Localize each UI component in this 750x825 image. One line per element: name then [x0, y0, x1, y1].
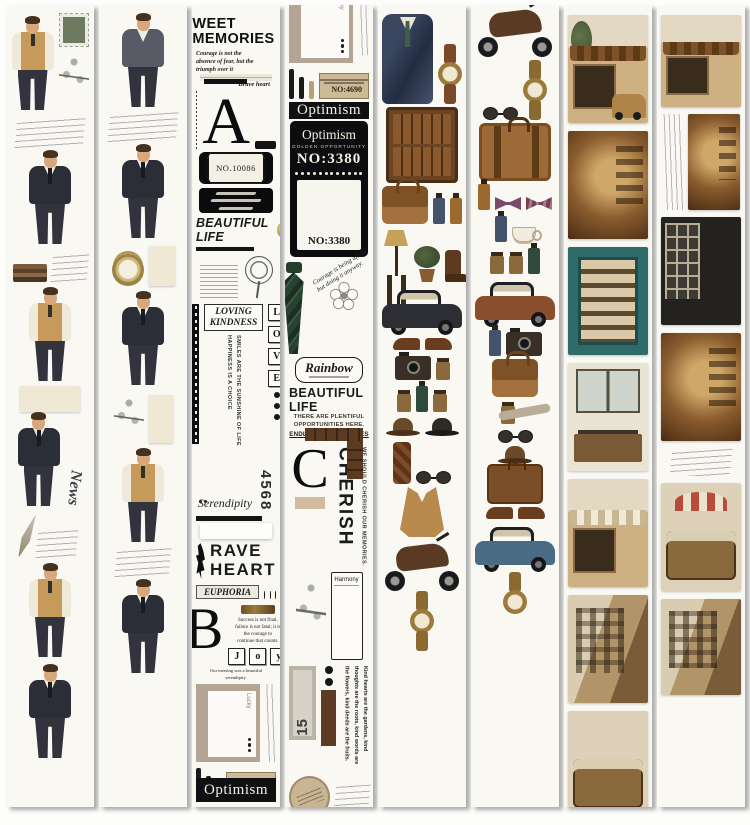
harmony-row: Harmony [289, 572, 369, 660]
dot [275, 591, 276, 599]
awning [570, 46, 645, 61]
shoes-row [382, 338, 462, 350]
man-vest-illustration-2 [29, 290, 71, 381]
dots-bar-column [321, 666, 336, 746]
sunglasses-row [475, 430, 555, 443]
vertical-mottos: HAPPINESS IS A CHOICE SMILES ARE THE SUN… [226, 335, 241, 453]
kindness-column: LOVING KINDNESS HAPPINESS IS A CHOICE SM… [204, 304, 264, 453]
title-line-1: WEET [192, 17, 274, 32]
shop-window [666, 56, 709, 95]
botanical-ink-sketch [296, 572, 326, 652]
man-reading-illustration [18, 415, 60, 506]
joy-tiles: J o y [228, 648, 280, 665]
lucky-dots [248, 738, 252, 753]
bronze-bar-icon [241, 605, 275, 614]
black-bar [196, 247, 254, 251]
books-row [10, 252, 90, 282]
watch-strap [416, 591, 428, 611]
book-stack-icon [13, 264, 47, 282]
ticket-title: Optimism [302, 127, 356, 143]
motorcycle-body [395, 542, 450, 572]
heart-line: HEART [210, 561, 276, 579]
botanical-sketch [114, 393, 144, 443]
b-side-column: Success is not final, failure is not fat… [228, 605, 280, 665]
botanical-sketch [59, 52, 89, 102]
figure-torso-vest [29, 579, 71, 617]
perfume-bottle-icon [495, 216, 507, 242]
watch-face [503, 590, 527, 614]
smiles-motto: SMILES ARE THE SUNSHINE OF LIFE [235, 335, 241, 453]
man-suit-illustration [29, 153, 71, 244]
figure-torso-suit [29, 680, 71, 718]
car-body [382, 304, 462, 328]
man-vest-illustration [12, 19, 54, 110]
lucky-dots [341, 39, 345, 54]
script-row [661, 448, 741, 476]
case-shelf [393, 147, 451, 177]
paper-scrap [20, 386, 80, 412]
beautiful-life-title: BEAUTIFUL LIFE [289, 386, 369, 414]
bottle-icon [528, 248, 540, 274]
vintage-car-blue-illustration [475, 522, 555, 572]
mini-label-row: NO:4690 [289, 69, 369, 99]
letter-tile-o: o [249, 648, 266, 665]
lamp-row [382, 230, 462, 282]
round-kraft-stamp [289, 776, 330, 807]
waistcoat-illustration [400, 487, 444, 537]
dot [274, 392, 280, 398]
letter-a-row: A [196, 91, 276, 149]
white-paper-scrap [200, 523, 272, 539]
bridge [513, 436, 518, 438]
shoes-row [475, 507, 555, 519]
figure-head [44, 153, 57, 168]
striped-awning [570, 510, 645, 525]
film-row: LOVING KINDNESS HAPPINESS IS A CHOICE SM… [196, 304, 276, 453]
jacket-row [382, 14, 462, 104]
strip1-top-row [10, 14, 90, 115]
tan-paint-swatch [295, 497, 325, 509]
ticket-fine-print [324, 82, 364, 84]
loving-line: LOVING [210, 307, 258, 317]
beautiful-life-title: BEAUTIFUL LIFE [196, 216, 272, 244]
lucky-label: Lucky [245, 693, 251, 709]
watch-face [523, 78, 547, 102]
gold-button-icon [277, 223, 280, 237]
striped-umbrella [675, 492, 726, 511]
street-cafe-scene [661, 483, 741, 591]
desk-lamp-icon [383, 230, 409, 282]
figure-head [44, 566, 57, 581]
bow-tie-striped-icon [526, 197, 552, 210]
harmony-label: Harmony [334, 577, 358, 586]
figure-torso-suit [122, 307, 164, 345]
figure-head [26, 19, 39, 34]
figure-legs [18, 70, 48, 110]
stamp-row [289, 776, 369, 807]
figure-torso-gray [122, 29, 164, 67]
spice-jar-icon [509, 256, 523, 274]
man-cap-illustration [29, 566, 71, 657]
spice-jar-icon [490, 256, 504, 274]
dot [274, 414, 280, 420]
letter-tile-y: y [270, 648, 280, 665]
news-label: News [63, 470, 85, 507]
wristwatch-icon-2 [410, 591, 434, 651]
serendipity-label: Serendipity [198, 496, 252, 511]
film-strip-icon [192, 304, 199, 444]
lens [436, 471, 451, 484]
jar-icon [397, 394, 411, 412]
figure-legs [128, 502, 158, 542]
tie-row: Courage is being afraid but doing it any… [289, 262, 369, 354]
dot-column [274, 392, 280, 420]
tape-strip-6-objects [471, 5, 559, 807]
lens [518, 430, 533, 443]
watch-strap [444, 44, 456, 64]
black-frame-label: NO.10086 [199, 152, 273, 184]
vintage-car-brown-illustration [475, 277, 555, 327]
letter-tile-j: J [228, 648, 245, 665]
ink-jar-icon [436, 362, 450, 380]
village-street-scene [661, 599, 741, 695]
watch-strap [416, 631, 428, 651]
serendipity-row: Serendipity 4568 [196, 459, 276, 511]
gold-watch-icon [523, 60, 547, 120]
watch-row [103, 246, 183, 286]
letter-tile-v: V [268, 348, 280, 365]
figure-legs [24, 466, 54, 506]
shop-with-car-scene [568, 711, 648, 807]
figure-legs [35, 341, 65, 381]
lucky-row-partial: Lucky [289, 5, 369, 63]
figure-head [137, 582, 150, 597]
parked-car [612, 94, 646, 118]
lens [483, 107, 498, 120]
man-dark-suit-illustration-3 [122, 582, 164, 673]
rave-line: RAVE [210, 542, 276, 560]
success-quote: Success is not final, failure is not fat… [235, 617, 280, 645]
lucky-label: Lucky [338, 5, 344, 10]
figure-legs [35, 718, 65, 758]
tie-side-column: Courage is being afraid but doing it any… [311, 262, 374, 311]
no-4690-number: NO:4690 [331, 85, 362, 94]
shop-window [573, 64, 616, 109]
handwritten-script-block [334, 782, 371, 807]
glasses-watch-row [475, 60, 555, 120]
leather-suitcase-illustration [479, 123, 551, 181]
figure-head [32, 415, 45, 430]
figure-head [137, 294, 150, 309]
mini-tan-label [309, 81, 314, 99]
white-script-line [210, 199, 261, 202]
handwritten-script-block [670, 448, 733, 476]
motorcycle-body [488, 8, 543, 38]
loving-kindness-label: LOVING KINDNESS [204, 304, 264, 331]
storefront-with-car-scene [568, 15, 648, 123]
tape-strip-4-typography: Lucky NO:4690 Optimism Optimism GOLDEN O… [285, 5, 373, 807]
paper-scrap [149, 246, 175, 286]
perfume-bottle-icon [450, 198, 462, 224]
no-4690-ticket: NO:4690 [319, 73, 369, 99]
happiness-motto: HAPPINESS IS A CHOICE [226, 335, 232, 453]
letter-tile-o: O [268, 326, 280, 343]
lens [416, 471, 431, 484]
stamp-script [295, 786, 324, 807]
letter-c-column: C [291, 447, 328, 509]
lens [498, 430, 513, 443]
figure-torso-vest [29, 303, 71, 341]
watch-strap [509, 572, 521, 592]
hats-row [382, 418, 462, 436]
dot [264, 591, 265, 599]
figure-torso-vest [12, 32, 54, 70]
figure-torso-suit [18, 428, 60, 466]
figure-torso-suit [122, 595, 164, 633]
ticket-number-bottom: NO:3380 [308, 235, 350, 247]
brown-swatch-bar [321, 690, 336, 746]
figure-head [137, 451, 150, 466]
bowler-hat-icon [425, 418, 459, 436]
mini-black-label [299, 77, 304, 99]
white-script-line [218, 207, 253, 210]
shop-window [573, 528, 616, 573]
fifteen-row: 15 Kind hearts are the gardens, kind tho… [289, 666, 369, 770]
bottle-icon [478, 184, 490, 210]
chocolate-horizontal [305, 428, 363, 441]
letter-tile-l: L [268, 304, 280, 321]
lucky-row: Lucky [196, 684, 276, 762]
letter-tile-e: E [268, 370, 280, 387]
dot [270, 591, 271, 599]
tape-strip-8-scenes [657, 5, 745, 807]
watch-strap [444, 84, 456, 104]
courage-quote: Courage is not the absence of fear, but … [196, 50, 254, 74]
briefcase-icon [487, 464, 543, 504]
perfume-coffee-row [475, 216, 555, 242]
ticket-perforation [295, 172, 362, 175]
micro-peony-row [196, 256, 276, 298]
dot [325, 678, 333, 686]
jars-row [382, 386, 462, 412]
memories-header-row: WEET MEMORIES [196, 17, 276, 47]
ticket-blank-area: NO:3380 [297, 180, 361, 250]
side-props [59, 14, 89, 102]
letter-c: C [291, 447, 328, 493]
figure-torso-suit [122, 160, 164, 198]
jar-icon [433, 394, 447, 412]
bow-tie-purple-icon [495, 197, 521, 210]
spice-row [475, 248, 555, 274]
green-necktie-illustration [285, 262, 306, 354]
beautiful-life-row: BEAUTIFUL LIFE [196, 216, 280, 244]
optimism-banner: Optimism [196, 778, 276, 802]
cafe-counter-scene [661, 333, 741, 441]
handwritten-script-block [107, 112, 178, 142]
ticket-fine-print [320, 79, 368, 81]
vertical-microtext-bar [196, 91, 197, 149]
figure-head [137, 16, 150, 31]
awning-storefront-scene [568, 479, 648, 587]
camera-row [382, 356, 462, 380]
wristwatch-icon [438, 44, 462, 104]
rave-heart-title: RAVE HEART [210, 542, 276, 579]
quill-row [10, 512, 90, 558]
figure-head [44, 667, 57, 682]
cologne-bottle-icon [433, 198, 445, 224]
figure-head [137, 147, 150, 162]
case-shelf [393, 114, 451, 144]
coffee-cup-icon [512, 227, 536, 242]
fedora-hat-icon [386, 418, 420, 436]
letter-a: A [202, 95, 250, 149]
paper-scrap [149, 395, 173, 443]
bar-cabinet-scene [688, 114, 740, 210]
script-bar-row [661, 114, 741, 210]
newspaper-scrap [200, 74, 272, 80]
watch-strap [529, 100, 541, 120]
figure-torso-suit [29, 166, 71, 204]
handwritten-script-block [14, 118, 85, 148]
rainbow-word: Rainbow [305, 360, 353, 376]
product-photo-washi-tape: News [0, 0, 750, 825]
potted-plant-icon [414, 246, 440, 282]
dress-shoe-icon [425, 338, 452, 350]
botanical-row [103, 393, 183, 443]
white-script-line [215, 192, 256, 195]
car-body [475, 296, 555, 320]
street-buildings-scene [568, 595, 648, 703]
figure-torso-vest [122, 464, 164, 502]
cafe-interior-scene [568, 131, 648, 239]
kind-hearts-quote-vertical: Kind hearts are the gardens, kind though… [341, 666, 369, 770]
ticket-15-number: 15 [294, 719, 311, 736]
cologne-bottle-icon [489, 330, 501, 356]
peony-sketch [243, 256, 273, 298]
no-10086-label: NO.10086 [207, 152, 265, 184]
sunglasses-icon [416, 471, 451, 484]
dress-shoe-icon [518, 507, 545, 519]
figure-legs [128, 198, 158, 238]
leather-satchel-icon [382, 186, 428, 224]
handwritten-script-block [114, 547, 171, 577]
ink-row [475, 400, 555, 424]
letter-b: B [192, 605, 223, 653]
golden-opportunity-label: GOLDEN OPPORTUNITY [292, 145, 366, 150]
figure-legs [128, 633, 158, 673]
pocket-watch-icon [112, 254, 144, 286]
tape-strip-2-gentlemen [99, 5, 187, 807]
man-vest-illustration [122, 451, 164, 542]
leather-boot-icon [445, 250, 461, 282]
chocolate-vertical [347, 441, 363, 479]
sunglasses-icon [498, 430, 533, 443]
optimism-banner: Optimism [289, 102, 369, 119]
ticket-number: NO:3380 [297, 151, 362, 168]
man-gray-suit-illustration [122, 16, 164, 107]
dark-office-window-scene [661, 217, 741, 325]
satchel-row [382, 186, 462, 224]
opportunity-ticket: Optimism GOLDEN OPPORTUNITY NO:3380 NO:3… [290, 121, 368, 257]
man-dark-suit-illustration-2 [122, 294, 164, 385]
tape-strip-5-objects [378, 5, 466, 807]
number-4568: 4568 [257, 470, 274, 511]
tape-strip-7-scenes [564, 5, 652, 807]
vertical-script-block [358, 5, 369, 55]
fine-print-block [200, 264, 238, 298]
ink-leaf-icon [196, 543, 205, 579]
harmony-frame: Harmony [331, 572, 363, 660]
dress-shoe-icon [393, 338, 420, 350]
dress-shoe-icon [486, 507, 513, 519]
dot [274, 403, 280, 409]
love-tiles: L O V E [268, 304, 280, 420]
vertical-script-block [265, 684, 276, 762]
pencil-strip-icon [275, 459, 280, 510]
handwritten-script-block [50, 252, 89, 282]
figure-legs [128, 345, 158, 385]
label-fine-print [309, 376, 349, 378]
storefront-scene [661, 15, 741, 107]
watch-strap [529, 60, 541, 80]
tape-strip-set: News [6, 5, 745, 807]
vintage-car-dark-illustration [382, 285, 462, 335]
gold-watch-icon-2 [503, 572, 527, 612]
handwritten-script-block [35, 528, 78, 558]
vintage-camera-icon [395, 356, 431, 380]
watch-face [438, 62, 462, 86]
office-desk-scene [568, 363, 648, 471]
figure-legs [35, 204, 65, 244]
awning [663, 42, 738, 55]
black-bar [196, 516, 262, 521]
car-body [475, 541, 555, 565]
news-row: News [10, 415, 90, 506]
bowtie-row [475, 184, 555, 210]
meeting-caption: Our meeting was a beautiful serendipity. [208, 668, 264, 681]
rave-heart-row: RAVE HEART [196, 542, 276, 579]
figure-head [44, 290, 57, 305]
dot [325, 666, 333, 674]
teal-bookcase-scene [568, 247, 648, 355]
suit-jacket-illustration [382, 14, 433, 104]
bottle-icon [416, 386, 428, 412]
rainbow-label: Rainbow [295, 357, 363, 383]
man-dark-suit-illustration [122, 147, 164, 238]
ticket-15: 15 [289, 666, 316, 740]
mini-black-label [289, 69, 294, 99]
grooming-case-illustration [386, 107, 458, 183]
motorcycle-illustration [382, 537, 462, 591]
figure-legs [128, 67, 158, 107]
title-line-2: MEMORIES [192, 32, 274, 47]
postage-stamp-icon [60, 14, 88, 46]
scarf-icon [393, 442, 411, 484]
man-suit-illustration-2 [29, 667, 71, 758]
lucky-card: Lucky [196, 684, 260, 762]
tape-strip-1-gentlemen: News [6, 5, 94, 807]
sweet-memories-title: WEET MEMORIES [192, 17, 274, 47]
tape-strip-3-typography: WEET MEMORIES Courage is not the absence… [192, 5, 280, 807]
lucky-card: Lucky [289, 5, 353, 63]
figure-legs [35, 617, 65, 657]
kindness-line: KINDNESS [210, 318, 258, 328]
letter-b-row: B Success is not final, failure is not f… [196, 605, 276, 665]
ink-smudge-bar [255, 141, 276, 149]
black-script-card [199, 188, 273, 214]
vertical-script-block [663, 114, 683, 210]
motorcycle-illustration [475, 5, 555, 57]
